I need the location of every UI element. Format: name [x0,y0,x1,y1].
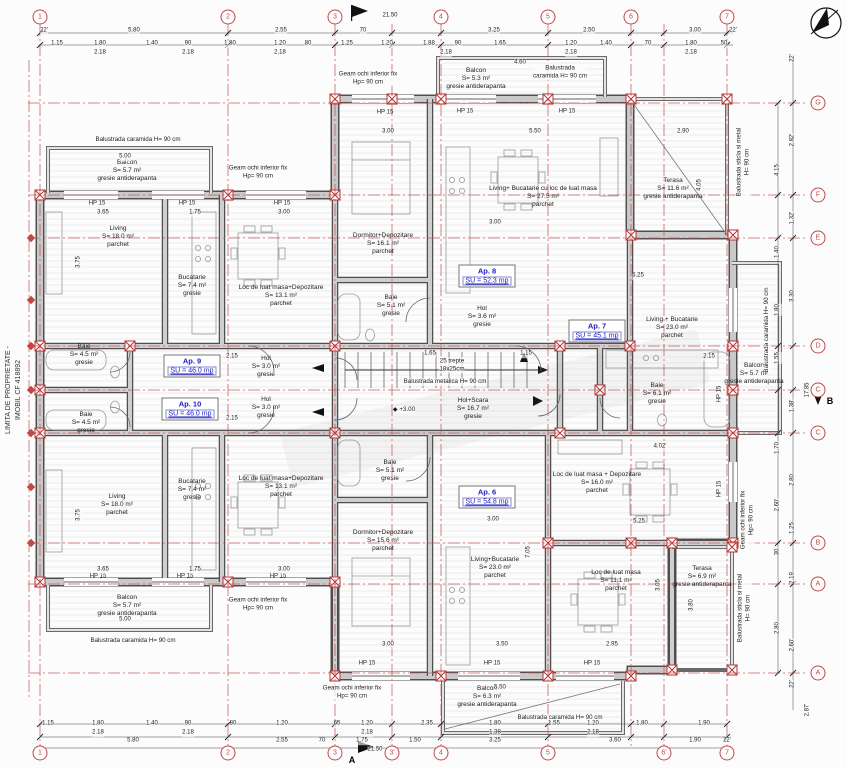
annotation-label: Geam ochi inferior fixHp= 90 cm [229,164,287,180]
dimension-label: 5.25 [632,272,644,280]
dimension-label: 5.50 [494,684,506,692]
grid-bubble: 3 [328,746,343,761]
dimension-label: 2.15 [226,353,238,361]
annotation-label: Balustrada metalica H= 90 cm [404,378,487,386]
annotation-label: Balustrada caramida H= 90 cm [90,637,175,645]
dimension-label: 2.18 [361,729,373,737]
dimension-label: 1.65 [424,350,436,358]
dimension-label: 1.40 [146,40,158,48]
room-label: BucatarieS= 7.4 m²gresie [178,478,206,502]
dimension-label: 30 [774,549,782,556]
room-label: TerasaS= 11.6 m²gresie antiderapanta [643,177,702,201]
dimension-label: 1.25 [789,522,797,534]
room-label: Loc de luat masa+DepozitareS= 13.1 m²par… [239,475,324,499]
room-label: BaieS= 5.1 m²gresie [377,294,405,318]
grid-bubble: 6 [624,10,639,25]
dimension-label: 1.65 [494,40,506,48]
annotation-label: Geam ochi inferior fixHp= 90 cm [323,684,381,700]
grid-bubble: 1 [33,746,48,761]
dimension-label: 3.00 [278,209,290,217]
window-label: HP 15 [274,200,291,208]
dimension-label: 1.70 [774,442,782,454]
dimension-label: 3.50 [496,641,508,649]
dimension-label: 3.30 [789,290,797,302]
room-label: BalconS= 5.3 m²gresie antiderapanta [446,67,505,91]
room-label: Living+BucatarieS= 23.0 m²parchet [471,556,519,580]
dimension-label: 50 [721,40,728,48]
room-label: Dormitor+DepozitareS= 15.6 m²parchet [353,529,413,553]
grid-bubble: F [811,188,826,203]
dimension-label: 70 [645,40,652,48]
dimension-label: 22' [40,27,48,35]
room-label: BaieS= 5.1 m²gresie [376,459,404,483]
grid-bubble: 4 [434,10,449,25]
dimension-label: 2.15 [703,353,715,361]
dimension-label: 1.90 [689,737,701,745]
window-label: HP 15 [179,200,196,208]
dimension-label: 2.50 [583,27,595,35]
section-label: B [827,396,834,406]
grid-bubble: A [811,577,826,592]
dimension-label: 4.05 [696,179,704,191]
dimension-label: 1.25 [341,40,353,48]
dimension-label: 5.80 [127,737,139,745]
dimension-label: 1.75 [356,737,368,745]
dimension-label: 70 [319,737,326,745]
dimension-label: 1.20 [565,40,577,48]
apartment-label: Ap. 7SU = 45.1 mp [569,320,626,343]
dimension-label: 22' [723,737,731,745]
dimension-label: 5.50 [529,128,541,136]
dimension-label: 7.05 [525,546,533,558]
dimension-label: 80 [230,720,237,728]
dimension-label: 2.55 [276,737,288,745]
grid-bubble: 3 [328,10,343,25]
dimension-label: 21.50 [382,12,397,20]
dimension-label: 2.87' [804,704,812,717]
floor-plan-canvas: LIMITA DE PROPRIETATE - IMOBIL CF 418892… [0,0,847,768]
grid-bubble: C [811,426,826,441]
dimension-label: 3.60 [609,737,621,745]
dimension-label: 1.40 [774,246,782,258]
dimension-label: 3.25 [489,737,501,745]
dimension-label: 3.80 [688,599,696,611]
annotation-label: Geam ochi inferior fixHp= 90 cm [739,491,755,549]
dimension-label: 1.40 [600,40,612,48]
annotation-label: Balustrada caramida H= 90 cm [95,136,180,144]
room-label: Loc de luat masaS= 11.1 m²parchet [591,569,641,593]
dimension-label: 2.18 [565,49,577,57]
room-label: BalconS= 5.7 m²gresie antiderapanta [97,159,156,183]
dimension-label: 90 [455,40,462,48]
dimension-label: 3.65 [97,566,109,574]
annotation-label: ◆ +3.00 [393,406,415,414]
dimension-label: 1.80 [685,40,697,48]
property-boundary-line1: LIMITA DE PROPRIETATE - [4,346,14,434]
window-label: HP 15 [484,660,501,668]
dimension-label: 1.80 [636,720,648,728]
grid-bubble: 2 [221,746,236,761]
dimension-label: 5.00 [119,153,131,161]
room-label: Hol+ScaraS= 16.7 m²gresie [457,397,489,421]
dimension-label: 2.18 [182,49,194,57]
room-label: LivingS= 18.0 m²parchet [101,493,133,517]
window-label: HP 15 [89,200,106,208]
property-boundary-line2: IMOBIL CF 418892 [14,346,24,434]
grid-bubble: G [811,96,826,111]
apartment-label: Ap. 10SU = 46.0 mp [162,398,219,421]
grid-bubble: C [811,383,826,398]
dimension-label: 2.18 [92,729,104,737]
window-label: HP 15 [584,660,601,668]
dimension-label: 2.18 [94,49,106,57]
annotation-label: 25 trepte18x25cm [439,357,464,373]
dimension-label: 3.00 [382,128,394,136]
room-label: BaieS= 6.1 m²gresie [643,382,671,406]
dimension-label: 1.80 [774,304,782,316]
room-label: Living + BucatarieS= 23.0 m²parchet [646,316,698,340]
dimension-label: 90 [185,720,192,728]
grid-bubble: 7 [720,746,735,761]
section-label: A [349,755,356,765]
dimension-label: 1.38' [789,400,797,413]
dimension-label: 1.80 [224,40,236,48]
dimension-label: 3.25 [488,27,500,35]
dimension-label: 1.15 [520,350,532,358]
dimension-label: 1.55 [774,352,782,364]
room-label: BalconS= 5.7 m²gresie antiderapanta [724,362,783,386]
room-label: BalconS= 6.3 m²gresie antiderapanta [457,685,516,709]
grid-bubble: B [811,536,826,551]
window-label: HP 15 [177,573,194,581]
dimension-label: 1.75 [189,209,201,217]
dimension-label: 1.75 [189,566,201,574]
dimension-label: 22' [729,27,737,35]
window-label: HP 15 [559,108,576,116]
room-label: Living+ Bucatarie cu loc de luat masaS= … [489,185,597,209]
dimension-label: 1.15 [51,40,63,48]
dimension-label: 90 [185,40,192,48]
dimension-label: 4.15 [774,164,782,176]
annotation-label: Balustradacaramida H= 90 cm [533,64,587,80]
dimension-label: 1.80 [94,40,106,48]
annotation-label: Balustrada caramida H= 90 cm [763,287,771,372]
grid-bubble: D [811,339,826,354]
dimension-label: 5.00 [119,616,131,624]
dimension-label: 1.55 [548,720,560,728]
dimension-label: 3.00 [382,641,394,649]
apartment-label: Ap. 8SU = 52.3 mp [459,265,516,288]
dimension-label: 1.90 [698,720,710,728]
room-label: Loc de luat masa+DepozitareS= 13.1 m²par… [239,284,324,308]
north-arrow-icon [811,8,841,38]
dimension-label: 3.00 [278,566,290,574]
dimension-label: 2.80 [774,622,782,634]
room-label: BucatarieS= 7.4 m²gresie [178,274,206,298]
dimension-label: 2.80 [789,474,797,486]
room-label: TerasaS= 6.9 m²gresie antiderapanta [672,565,731,589]
window-label: HP 15 [270,573,287,581]
annotation-label: Geam ochi inferior fixHp= 90 cm [339,70,397,86]
dimension-label: 1.20 [274,40,286,48]
dimension-label: 2.18 [440,49,452,57]
dimension-label: 1.80 [92,720,104,728]
dimension-label: 3.00 [689,27,701,35]
grid-bubble: 1 [33,10,48,25]
grid-bubble: 4 [434,746,449,761]
room-label: Dormitor+DepozitareS= 16.1 m²parchet [353,232,413,256]
dimension-label: 4.02' [654,443,667,451]
window-label: HP 15 [377,109,394,117]
room-label: HolS= 3.0 m²gresie [252,396,280,420]
dimension-label: 1.15 [42,720,54,728]
dimension-label: 1.20 [276,720,288,728]
room-label: BalconS= 5.7 m²gresie antiderapanta [97,594,156,618]
apartment-label: Ap. 6SU = 54.8 mp [459,486,516,509]
dimension-label: 70 [360,27,367,35]
dimension-label: 3.00 [489,219,501,227]
window-label: HP 15 [359,660,376,668]
dimension-label: 2.55 [275,27,287,35]
dimension-label: 2.15 [226,415,238,423]
dimension-label: 2.95 [606,641,618,649]
grid-bubble: E [811,231,826,246]
dimension-label: 3.75 [75,509,83,521]
property-boundary-label: LIMITA DE PROPRIETATE - IMOBIL CF 418892 [4,346,24,434]
window-label: HP 15 [90,573,107,581]
dimension-label: 2.18 [182,729,194,737]
dimension-label: 2.18 [274,49,286,57]
dimension-label: 1.38 [489,729,501,737]
dimension-label: 5.80 [128,27,140,35]
grid-bubble: 3' [385,746,400,761]
dimension-label: 2.19 [789,572,797,584]
dimension-label: 80 [305,40,312,48]
window-label: HP 15 [457,108,474,116]
dimension-label: 1.40 [146,720,158,728]
annotation-label: Balustrada sticla si metalH= 90 cm [735,128,751,196]
dimension-label: 2.90 [677,128,689,136]
room-label: BaieS= 4.5 m²gresie [72,411,100,435]
dimension-label: 3.00 [487,516,499,524]
dimension-label: 2.82' [789,134,797,147]
dimension-label: 1.50 [409,737,421,745]
grid-bubble: 7 [720,10,735,25]
grid-bubble: 2 [221,10,236,25]
dimension-label: 1.32' [789,212,797,225]
dimension-label: 22' [789,680,797,688]
dimension-label: 22' [789,54,797,62]
room-label: LivingS= 18.0 m²parchet [102,225,134,249]
room-label: Loc de luat masa + DepozitareS= 16.0 m²p… [553,471,641,495]
window-label: HP 15 [716,481,724,498]
dimension-label: 5.25 [633,518,645,526]
annotation-label: Geam ochi inferior fixHp= 90 cm [229,596,287,612]
dimension-label: 2.18 [587,729,599,737]
annotation-label: Balustrada sticla si metalH= 90 cm [736,574,752,642]
dimension-label: 4.60 [514,59,526,67]
dimension-label: 1.20 [587,720,599,728]
room-label: HolS= 3.0 m²gresie [252,355,280,379]
grid-bubble: 5 [541,746,556,761]
dimension-label: 2.60' [774,499,782,512]
dimension-label: 1.80 [489,720,501,728]
dimension-label: 3.65 [97,209,109,217]
dimension-label: 3.75 [75,256,83,268]
window-label: HP 15 [716,386,724,403]
dimension-label: 2.18 [685,49,697,57]
dimension-label: 3.05 [655,579,663,591]
dimension-label: 1.20 [361,720,373,728]
apartment-label: Ap. 9SU = 46.0 mp [164,355,221,378]
room-label: BaieS= 4.5 m²gresie [70,343,98,367]
dimension-label: 1.20 [381,40,393,48]
grid-bubble: 5 [541,10,556,25]
room-label: HolS= 3.6 m²gresie [468,305,496,329]
grid-bubble: 6' [657,746,672,761]
dimension-label: 21.50 [367,746,382,754]
dimension-label: 2.35 [421,720,433,728]
dimension-label: 1.88 [423,40,435,48]
dimension-label: 65 [334,720,341,728]
grid-bubble: A [811,666,826,681]
dimension-label: 2.60' [789,639,797,652]
